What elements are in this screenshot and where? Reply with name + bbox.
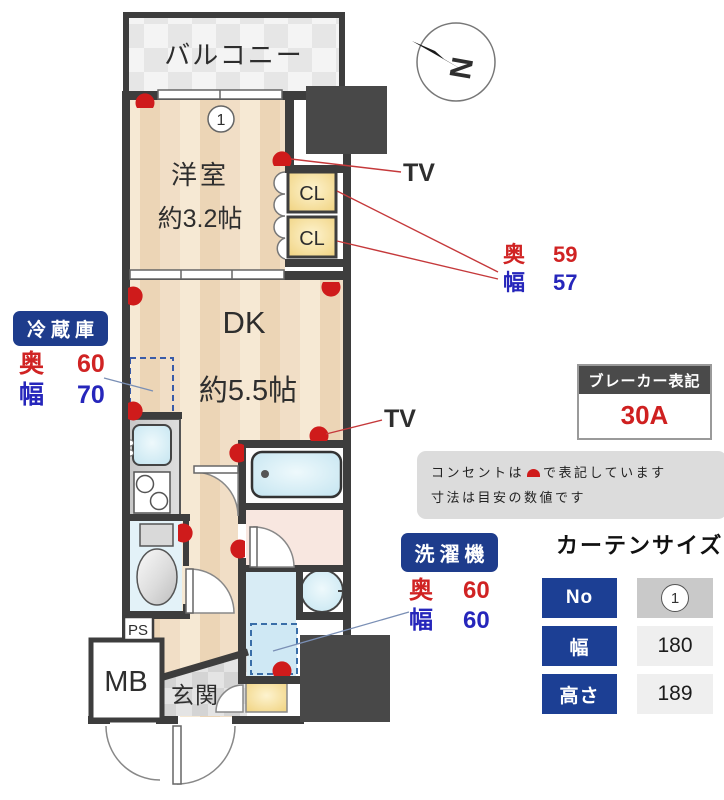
washer-width-row: 幅 60 <box>409 606 490 636</box>
depth-value: 60 <box>77 349 105 380</box>
closet-bottom-label: CL <box>299 228 325 250</box>
width-label: 幅 <box>19 380 51 411</box>
closet-dims-callout: 奥 59 幅 57 <box>503 241 577 296</box>
width-value: 70 <box>77 380 105 411</box>
dk-door-leaf <box>194 466 238 473</box>
western-room-size: 約3.2帖 <box>158 205 243 233</box>
curtain-size-table: No 1 幅 180 高さ 189 <box>542 578 713 714</box>
note-line1-prefix: コンセントは <box>431 465 524 480</box>
dk-size: 約5.5帖 <box>199 374 297 407</box>
washer-badge: 洗濯機 <box>401 533 498 572</box>
breaker-box: ブレーカー表記 30A <box>577 364 712 440</box>
width-value: 60 <box>463 606 490 636</box>
sliding-door <box>130 270 284 279</box>
note-box: コンセントはで表記しています 寸法は目安の数値です <box>417 451 724 519</box>
dk-label: DK <box>222 305 265 340</box>
closet-depth-row: 奥 59 <box>503 241 577 269</box>
depth-label: 奥 <box>19 349 51 380</box>
toilet-tank <box>140 524 173 546</box>
curtain-number-text: 1 <box>217 112 226 129</box>
fridge-badge: 冷蔵庫 <box>13 311 108 346</box>
width-label: 幅 <box>409 606 439 636</box>
width-value: 57 <box>553 269 577 297</box>
toilet-door-leaf <box>186 569 193 613</box>
depth-label: 奥 <box>503 241 531 269</box>
curtain-size-title: カーテンサイズ <box>556 528 723 560</box>
shoe-box <box>246 682 287 712</box>
depth-value: 59 <box>553 241 577 269</box>
kitchen-sink <box>133 425 171 465</box>
burner <box>151 493 168 510</box>
western-room-label: 洋室 <box>171 160 229 190</box>
burner <box>137 476 154 493</box>
washer-dims-callout: 奥 60 幅 60 <box>409 576 490 636</box>
depth-label: 奥 <box>409 576 439 606</box>
outlet-icon <box>527 469 540 477</box>
fridge-width-row: 幅 70 <box>19 380 105 411</box>
tv-lower-label: TV <box>384 405 416 433</box>
tv-upper-label: TV <box>403 159 435 187</box>
closet-width-row: 幅 57 <box>503 269 577 297</box>
toilet-bowl <box>137 549 177 605</box>
breaker-value: 30A <box>579 394 710 438</box>
circled-number: 1 <box>661 584 689 612</box>
fridge-depth-row: 奥 60 <box>19 349 105 380</box>
curtain-row-no-header: No <box>542 578 617 618</box>
pipe-space-label: PS <box>128 622 148 639</box>
curtain-row-height-header: 高さ <box>542 674 617 714</box>
bathtub-drain <box>261 470 269 478</box>
note-line2: 寸法は目安の数値です <box>431 490 586 505</box>
entry-door-leaf <box>173 726 181 784</box>
entry-door-arc <box>177 726 235 784</box>
balcony-label: バルコニー <box>164 40 303 70</box>
floorplan-page: N バルコニー 洋室 約3.2帖 1 DK 約5.5帖 CL CL 玄関 MB … <box>0 0 724 800</box>
width-label: 幅 <box>503 269 531 297</box>
wash-basin <box>301 570 343 612</box>
breaker-title: ブレーカー表記 <box>579 366 710 394</box>
fridge-dims-callout: 奥 60 幅 70 <box>19 349 105 412</box>
meter-box-label: MB <box>104 666 148 698</box>
neighbor-block-bottom <box>300 635 390 722</box>
mb-door-arc <box>106 726 160 780</box>
note-line1-suffix: で表記しています <box>543 465 667 480</box>
washer-depth-row: 奥 60 <box>409 576 490 606</box>
neighbor-block-top <box>306 86 387 154</box>
entrance-label: 玄関 <box>171 682 219 708</box>
curtain-row-width-value: 180 <box>637 626 713 666</box>
depth-value: 60 <box>463 576 490 606</box>
closet-top-label: CL <box>299 183 325 205</box>
powder-door-leaf <box>250 527 257 567</box>
curtain-row-height-value: 189 <box>637 674 713 714</box>
compass: N <box>412 23 495 101</box>
curtain-row-width-header: 幅 <box>542 626 617 666</box>
curtain-row-no-value: 1 <box>637 578 713 618</box>
